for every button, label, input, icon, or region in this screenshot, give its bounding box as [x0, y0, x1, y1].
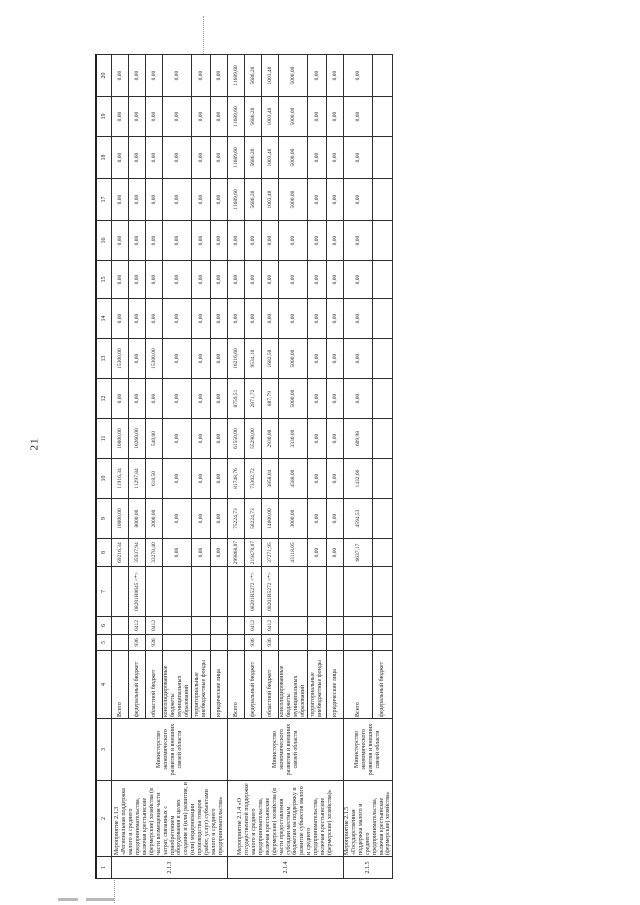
budget-level: Всего: [344, 651, 373, 719]
code-rz: 0412: [146, 617, 163, 635]
amount-cell: 0,00: [308, 459, 327, 499]
amount-cell: 0,00: [211, 499, 228, 539]
amount-cell: 0,00: [192, 137, 211, 179]
amount-cell: 0,00: [308, 137, 327, 179]
amount-cell: 0,00: [279, 299, 308, 339]
code-grbs: 936: [262, 635, 279, 651]
amount-cell: 15300,00: [112, 339, 129, 379]
amount-cell: 0,00: [327, 137, 344, 179]
column-number: 5: [96, 635, 112, 651]
amount-cell: 2930,00: [262, 419, 279, 459]
code-grbs: [112, 635, 129, 651]
amount-cell: 0,00: [146, 379, 163, 419]
code-csr: [327, 567, 344, 617]
amount-cell: 0,00: [308, 499, 327, 539]
amount-cell: 0,00: [327, 539, 344, 567]
executor: Министерство экономического развития и в…: [344, 719, 393, 781]
amount-cell: 1682,50: [262, 339, 279, 379]
amount-cell: 0,00: [163, 55, 192, 97]
amount-cell: 0,00: [344, 137, 373, 179]
amount-cell: 0,00: [344, 299, 373, 339]
amount-cell: 540,00: [146, 419, 163, 459]
budget-level: территориальные внебюджетные фонды: [192, 651, 211, 719]
amount-cell: 73302,72: [245, 459, 262, 499]
code-rz: 0412: [245, 617, 262, 635]
amount-cell: 0,00: [112, 221, 129, 261]
column-number-row: 1234567891011121314151617181920: [96, 55, 112, 879]
measure-name: Мероприятие 2.1.5 «Государственная подде…: [344, 781, 393, 857]
amount-cell: 10800,00: [112, 419, 129, 459]
amount-cell: 0,00: [344, 55, 373, 97]
table-row: 2.1.3Мероприятие 2.1.3 «Региональная под…: [112, 55, 129, 879]
amount-cell: 0,00: [211, 299, 228, 339]
column-number: 9: [96, 499, 112, 539]
amount-cell: 0,00: [192, 55, 211, 97]
code-rz: [211, 617, 228, 635]
executor: Министерство экономического развития и в…: [228, 719, 344, 781]
amount-cell: 0,00: [112, 261, 129, 299]
amount-cell: 15300,00: [146, 339, 163, 379]
amount-cell: 0,00: [163, 261, 192, 299]
amount-cell: 10260,00: [129, 419, 146, 459]
amount-cell: 0,00: [163, 339, 192, 379]
code-rz: 0412: [129, 617, 146, 635]
amount-cell: 0,00: [163, 221, 192, 261]
scanned-document-page: 21 1234567891011121314151617181920 2.1.3…: [0, 0, 640, 905]
scan-artifact-line: [203, 16, 204, 56]
amount-cell: 0,00: [163, 97, 192, 137]
amount-cell: 0,00: [211, 179, 228, 221]
amount-cell: 0,00: [112, 299, 129, 339]
amount-cell: 43118,05: [279, 539, 308, 567]
executor: Министерство экономического развития и в…: [112, 719, 228, 781]
amount-cell: 0,00: [308, 379, 327, 419]
amount-cell: [372, 179, 392, 221]
amount-cell: 0,00: [308, 419, 327, 459]
amount-cell: 11689,60: [228, 179, 245, 221]
amount-cell: 5000,00: [279, 137, 308, 179]
code-rz: 0412: [262, 617, 279, 635]
scan-artifact-dash: [58, 898, 78, 901]
code-grbs: 936: [245, 635, 262, 651]
amount-cell: 0,00: [129, 137, 146, 179]
amount-cell: [372, 339, 392, 379]
code-grbs: [308, 635, 327, 651]
amount-cell: 0,00: [129, 179, 146, 221]
amount-cell: 33278,40: [146, 539, 163, 567]
code-csr: [279, 567, 308, 617]
amount-cell: 0,00: [163, 459, 192, 499]
amount-cell: 0,00: [228, 221, 245, 261]
code-grbs: [192, 635, 211, 651]
amount-cell: 3858,04: [262, 459, 279, 499]
budget-level: юридические лица: [211, 651, 228, 719]
amount-cell: 75224,73: [228, 499, 245, 539]
scan-artifact-dash: [86, 898, 114, 901]
amount-cell: 0,00: [344, 221, 373, 261]
budget-level: юридические лица: [327, 651, 344, 719]
amount-cell: 0,00: [308, 261, 327, 299]
amount-cell: 16216,60: [228, 339, 245, 379]
amount-cell: 0,00: [327, 339, 344, 379]
amount-cell: 0,00: [211, 379, 228, 419]
amount-cell: 0,00: [146, 261, 163, 299]
column-number: 12: [96, 379, 112, 419]
amount-cell: 0,00: [344, 179, 373, 221]
amount-cell: 5000,00: [279, 339, 308, 379]
amount-cell: 0,00: [228, 261, 245, 299]
amount-cell: [372, 221, 392, 261]
code-grbs: [372, 635, 392, 651]
measure-name: Мероприятие 2.1.4 «О государственной под…: [228, 781, 344, 857]
amount-cell: 55290,00: [245, 419, 262, 459]
amount-cell: 6637,17: [344, 539, 373, 567]
amount-cell: 0,00: [344, 379, 373, 419]
code-rz: [163, 617, 192, 635]
amount-cell: 5686,20: [245, 137, 262, 179]
amount-cell: [372, 539, 392, 567]
column-number: 15: [96, 261, 112, 299]
column-number: 1: [96, 857, 112, 879]
column-number: 16: [96, 221, 112, 261]
code-rz: [372, 617, 392, 635]
budget-level: Всего: [112, 651, 129, 719]
column-number: 3: [96, 719, 112, 781]
amount-cell: [372, 261, 392, 299]
column-number: 10: [96, 459, 112, 499]
amount-cell: 81748,76: [228, 459, 245, 499]
table-row: 2.1.4Мероприятие 2.1.4 «О государственно…: [228, 55, 245, 879]
column-number: 19: [96, 97, 112, 137]
amount-cell: 0,00: [192, 499, 211, 539]
amount-cell: 14000,00: [262, 499, 279, 539]
amount-cell: 0,00: [344, 261, 373, 299]
budget-table: 1234567891011121314151617181920 2.1.3Мер…: [95, 54, 393, 879]
code-grbs: [344, 635, 373, 651]
amount-cell: [372, 499, 392, 539]
amount-cell: 0,00: [327, 419, 344, 459]
amount-cell: 0,00: [308, 221, 327, 261]
amount-cell: 0,00: [211, 459, 228, 499]
table-row: 2.1.5Мероприятие 2.1.5 «Государственная …: [344, 55, 373, 879]
amount-cell: 0,00: [327, 459, 344, 499]
code-csr: 08201R5272 <*>: [262, 567, 279, 617]
rotated-table-area: 1234567891011121314151617181920 2.1.3Мер…: [95, 55, 387, 883]
amount-cell: 5000,00: [279, 379, 308, 419]
column-number: 2: [96, 781, 112, 857]
amount-cell: 9534,10: [245, 339, 262, 379]
budget-level: консолидированные бюджеты муниципальных …: [279, 651, 308, 719]
amount-cell: 0,00: [308, 299, 327, 339]
budget-level: федеральный бюджет: [245, 651, 262, 719]
amount-cell: 35937,94: [129, 539, 146, 567]
amount-cell: 0,00: [163, 299, 192, 339]
code-grbs: 936: [129, 635, 146, 651]
amount-cell: 5000,00: [279, 97, 308, 137]
amount-cell: 0,00: [192, 97, 211, 137]
code-csr: [228, 567, 245, 617]
amount-cell: 0,00: [327, 261, 344, 299]
amount-cell: 37271,95: [262, 539, 279, 567]
column-number: 20: [96, 55, 112, 97]
amount-cell: [372, 459, 392, 499]
amount-cell: 0,00: [192, 179, 211, 221]
amount-cell: 0,00: [192, 261, 211, 299]
amount-cell: 0,00: [308, 55, 327, 97]
amount-cell: 0,00: [192, 221, 211, 261]
amount-cell: 0,00: [211, 137, 228, 179]
code-csr: [146, 567, 163, 617]
amount-cell: 10000,00: [112, 499, 129, 539]
column-number: 14: [96, 299, 112, 339]
amount-cell: [372, 97, 392, 137]
amount-cell: 0,00: [129, 221, 146, 261]
amount-cell: 4594,53: [344, 499, 373, 539]
amount-cell: 0,00: [211, 221, 228, 261]
amount-cell: 0,00: [308, 179, 327, 221]
amount-cell: [372, 137, 392, 179]
code-csr: [308, 567, 327, 617]
code-rz: [344, 617, 373, 635]
amount-cell: 0,00: [262, 221, 279, 261]
amount-cell: 5000,00: [279, 179, 308, 221]
column-number: 17: [96, 179, 112, 221]
scan-artifact-line: [114, 880, 115, 903]
measure-id: 2.1.3: [112, 857, 228, 879]
code-csr: [163, 567, 192, 617]
amount-cell: 0,00: [192, 299, 211, 339]
amount-cell: 0,00: [163, 539, 192, 567]
amount-cell: 0,00: [308, 97, 327, 137]
amount-cell: 0,00: [163, 137, 192, 179]
code-rz: [308, 617, 327, 635]
amount-cell: 2871,72: [245, 379, 262, 419]
amount-cell: 0,00: [192, 459, 211, 499]
code-csr: [112, 567, 129, 617]
amount-cell: [372, 299, 392, 339]
amount-cell: 0,00: [245, 221, 262, 261]
amount-cell: 0,00: [146, 97, 163, 137]
budget-level: Всего: [228, 651, 245, 719]
amount-cell: 0,00: [279, 261, 308, 299]
budget-level: консолидированные бюджеты муниципальных …: [163, 651, 192, 719]
code-rz: [279, 617, 308, 635]
budget-level: областной бюджет: [262, 651, 279, 719]
column-number: 7: [96, 567, 112, 617]
code-grbs: [228, 635, 245, 651]
amount-cell: 0,00: [192, 379, 211, 419]
amount-cell: 0,00: [146, 137, 163, 179]
amount-cell: 0,00: [192, 339, 211, 379]
amount-cell: 0,00: [163, 419, 192, 459]
amount-cell: 0,00: [327, 55, 344, 97]
code-rz: [327, 617, 344, 635]
amount-cell: 0,00: [146, 221, 163, 261]
amount-cell: 11689,60: [228, 137, 245, 179]
amount-cell: 69216,34: [112, 539, 129, 567]
amount-cell: 0,00: [344, 97, 373, 137]
code-rz: [192, 617, 211, 635]
amount-cell: 0,00: [211, 419, 228, 459]
amount-cell: 0,00: [146, 299, 163, 339]
amount-cell: 0,00: [112, 97, 129, 137]
amount-cell: 0,00: [279, 221, 308, 261]
page-number: 21: [29, 438, 41, 451]
amount-cell: [372, 379, 392, 419]
amount-cell: 11689,60: [228, 97, 245, 137]
amount-cell: 0,00: [211, 97, 228, 137]
measure-id: 2.1.5: [344, 857, 393, 879]
amount-cell: 1003,40: [262, 55, 279, 97]
code-rz: [112, 617, 129, 635]
amount-cell: 0,00: [163, 379, 192, 419]
amount-cell: 1003,40: [262, 97, 279, 137]
amount-cell: 0,00: [245, 299, 262, 339]
amount-cell: 0,00: [112, 137, 129, 179]
amount-cell: 5000,00: [279, 55, 308, 97]
amount-cell: 0,00: [129, 299, 146, 339]
column-number: 13: [96, 339, 112, 379]
column-number: 6: [96, 617, 112, 635]
amount-cell: [372, 419, 392, 459]
amount-cell: 11297,84: [129, 459, 146, 499]
amount-cell: 0,00: [129, 379, 146, 419]
code-grbs: [211, 635, 228, 651]
measure-id: 2.1.4: [228, 857, 344, 879]
budget-level: федеральный бюджет: [372, 651, 392, 719]
code-grbs: [327, 635, 344, 651]
amount-cell: 3330,00: [279, 419, 308, 459]
amount-cell: 0,00: [211, 339, 228, 379]
code-grbs: [279, 635, 308, 651]
amount-cell: 0,00: [129, 97, 146, 137]
amount-cell: 0,00: [327, 499, 344, 539]
amount-cell: 3000,00: [279, 499, 308, 539]
amount-cell: 0,00: [308, 339, 327, 379]
column-number: 8: [96, 539, 112, 567]
amount-cell: 0,00: [327, 179, 344, 221]
amount-cell: 0,00: [129, 339, 146, 379]
amount-cell: 8759,51: [228, 379, 245, 419]
amount-cell: 0,00: [129, 261, 146, 299]
amount-cell: 0,00: [327, 221, 344, 261]
amount-cell: 11689,60: [228, 55, 245, 97]
amount-cell: 5686,20: [245, 55, 262, 97]
amount-cell: 609,98: [344, 419, 373, 459]
amount-cell: 1003,40: [262, 137, 279, 179]
amount-cell: 8000,00: [129, 499, 146, 539]
table-body: 2.1.3Мероприятие 2.1.3 «Региональная под…: [112, 55, 393, 879]
amount-cell: 0,00: [211, 55, 228, 97]
amount-cell: 61550,00: [228, 419, 245, 459]
amount-cell: 0,00: [262, 299, 279, 339]
column-number: 11: [96, 419, 112, 459]
amount-cell: 0,00: [146, 55, 163, 97]
amount-cell: 0,00: [112, 55, 129, 97]
code-csr: [192, 567, 211, 617]
amount-cell: 0,00: [327, 299, 344, 339]
amount-cell: 0,00: [112, 379, 129, 419]
amount-cell: 1432,66: [344, 459, 373, 499]
amount-cell: 5686,20: [245, 97, 262, 137]
amount-cell: 0,00: [163, 179, 192, 221]
amount-cell: 11916,34: [112, 459, 129, 499]
code-csr: [211, 567, 228, 617]
amount-cell: 0,00: [327, 379, 344, 419]
amount-cell: 0,00: [344, 339, 373, 379]
amount-cell: 0,00: [192, 539, 211, 567]
code-grbs: [163, 635, 192, 651]
amount-cell: 618,50: [146, 459, 163, 499]
amount-cell: 887,79: [262, 379, 279, 419]
amount-cell: 0,00: [129, 55, 146, 97]
amount-cell: 299868,07: [228, 539, 245, 567]
amount-cell: 0,00: [327, 97, 344, 137]
column-number: 4: [96, 651, 112, 719]
code-csr: 08201R0645 <*>: [129, 567, 146, 617]
amount-cell: 2000,00: [146, 499, 163, 539]
table-column-numbers: 1234567891011121314151617181920: [96, 55, 112, 879]
amount-cell: 0,00: [245, 261, 262, 299]
code-csr: [372, 567, 392, 617]
amount-cell: 4588,00: [279, 459, 308, 499]
measure-name: Мероприятие 2.1.3 «Региональная поддержк…: [112, 781, 228, 857]
amount-cell: 0,00: [146, 179, 163, 221]
budget-level: территориальные внебюджетные фонды: [308, 651, 327, 719]
budget-level: областной бюджет: [146, 651, 163, 719]
amount-cell: 58224,73: [245, 499, 262, 539]
amount-cell: 0,00: [163, 499, 192, 539]
amount-cell: 0,00: [228, 299, 245, 339]
amount-cell: 1003,40: [262, 179, 279, 221]
amount-cell: 0,00: [308, 539, 327, 567]
amount-cell: 5686,20: [245, 179, 262, 221]
amount-cell: 219478,07: [245, 539, 262, 567]
amount-cell: 0,00: [211, 261, 228, 299]
code-csr: 08201R5272 <*>: [245, 567, 262, 617]
amount-cell: 0,00: [112, 179, 129, 221]
code-grbs: 936: [146, 635, 163, 651]
code-csr: [344, 567, 373, 617]
code-rz: [228, 617, 245, 635]
column-number: 18: [96, 137, 112, 179]
budget-level: федеральный бюджет: [129, 651, 146, 719]
amount-cell: 0,00: [211, 539, 228, 567]
amount-cell: [372, 55, 392, 97]
amount-cell: 0,00: [192, 419, 211, 459]
amount-cell: 0,00: [262, 261, 279, 299]
